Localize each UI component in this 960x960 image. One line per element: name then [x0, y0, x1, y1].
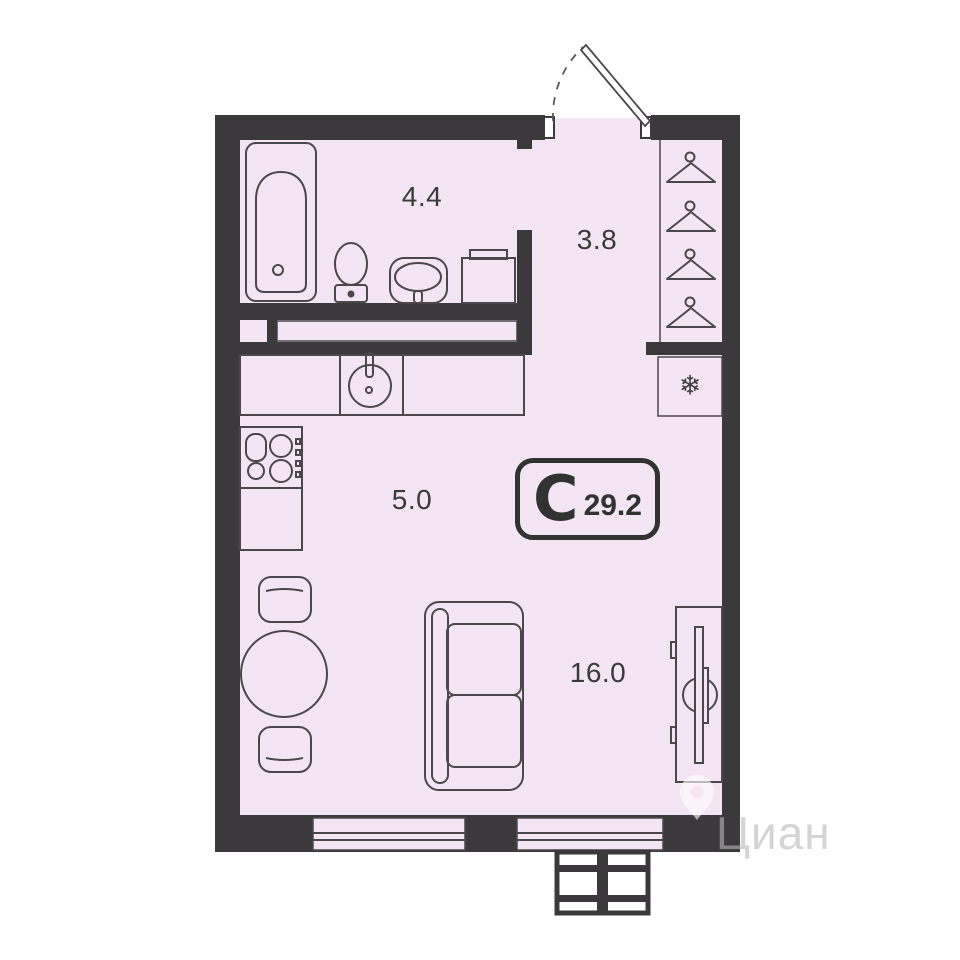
watermark-brand: Циан [716, 806, 831, 860]
wall-bathroom-right-stub [517, 140, 532, 149]
wall-left [215, 115, 240, 852]
wall-wardrobe-bottom [646, 342, 722, 355]
balcony [557, 852, 648, 913]
badge-total-area: 29.2 [584, 489, 642, 523]
duct-niche [277, 321, 517, 341]
snowflake-icon: ❄ [679, 371, 702, 402]
wall-bathroom-bottom [240, 303, 532, 320]
wall-bathroom-right [517, 230, 532, 355]
wall-top-left [215, 115, 545, 140]
area-label-living-room: 16.0 [570, 657, 627, 689]
area-label-hallway: 3.8 [577, 224, 617, 256]
wall-kitchen-top [240, 342, 532, 355]
badge-type-letter: С [533, 470, 579, 529]
floorplan-canvas: 4.4 3.8 5.0 16.0 ❄ С 29.2 Циан [0, 0, 960, 960]
area-label-kitchen: 5.0 [392, 484, 432, 516]
wall-right [722, 115, 740, 852]
entrance-door-leaf [581, 45, 650, 126]
entrance-door-swing-arc [553, 47, 583, 121]
wall-niche-divider [267, 320, 277, 342]
apartment-type-badge: С 29.2 [515, 458, 660, 540]
area-label-bathroom: 4.4 [402, 181, 442, 213]
